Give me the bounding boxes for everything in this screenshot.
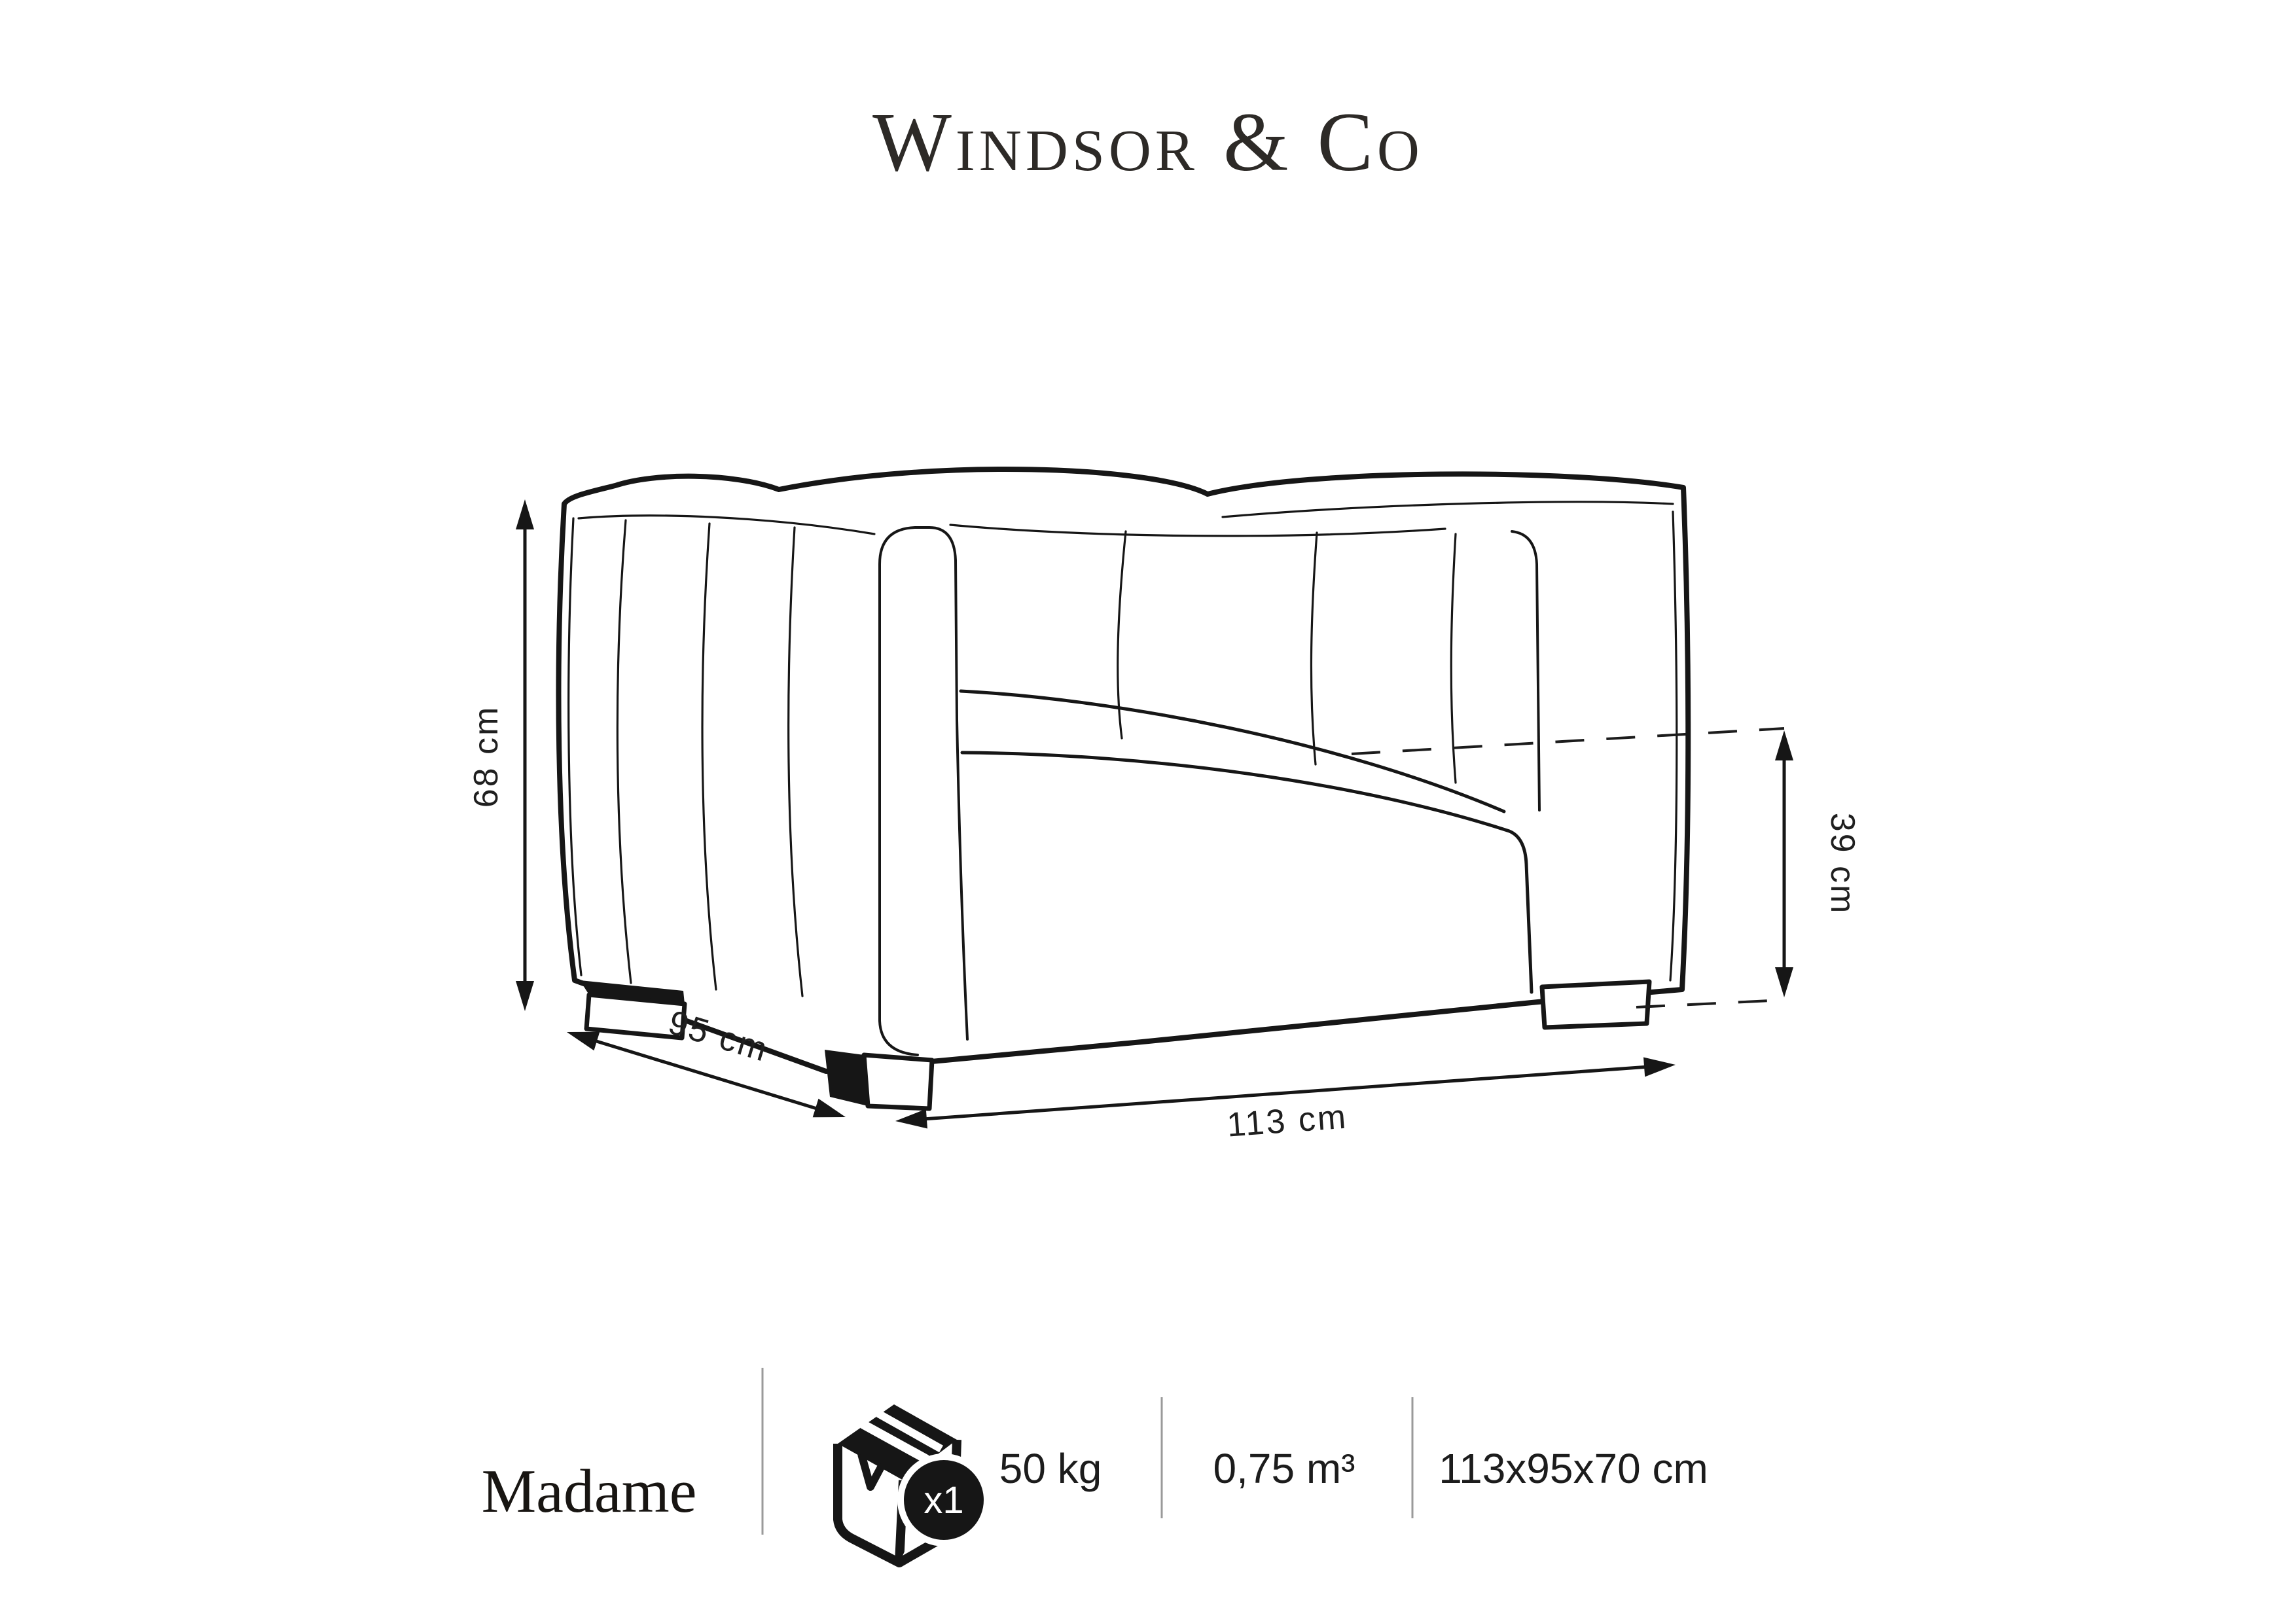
left-edge-inner-line: [569, 518, 581, 975]
front-right-foot: [1542, 982, 1649, 1027]
width-dimension-label: 113 cm: [1226, 1098, 1349, 1145]
back-channel-seam: [1451, 534, 1456, 783]
dimension-annotations: 68 cm 95 cm 113 cm 39 cm: [467, 499, 1861, 1145]
width-dimension: 113 cm: [895, 1058, 1676, 1145]
arrow-down-icon: [516, 981, 534, 1011]
foot-front-face: [1542, 982, 1649, 1027]
count-badge-label: x1: [924, 1479, 963, 1522]
spec-sheet-canvas: Windsor & Co: [0, 0, 2296, 1623]
seat-height-dimension-label: 39 cm: [1823, 813, 1861, 916]
arrow-up-icon: [1775, 730, 1793, 760]
right-arm-inner-seam: [1512, 531, 1539, 810]
side-channel-seam: [617, 520, 631, 983]
side-channel-seam: [789, 527, 802, 996]
brand-logo: Windsor & Co: [872, 96, 1424, 188]
right-top-inner-line: [1223, 502, 1673, 517]
arrow-up-left-icon: [567, 1032, 600, 1051]
armchair-line-drawing: [559, 469, 1689, 1109]
volume-value: 0,75 m³: [1213, 1445, 1355, 1492]
arrow-down-right-icon: [813, 1099, 846, 1118]
weight-value: 50 kg: [999, 1445, 1102, 1492]
box-dimensions-value: 113x95x70 cm: [1439, 1445, 1708, 1492]
arrow-down-icon: [1775, 967, 1793, 997]
left-arm-top-inner-line: [579, 516, 874, 534]
depth-dimension-label: 95 cm: [664, 1003, 774, 1069]
floor-level-dashed-line: [1636, 1000, 1784, 1007]
height-dimension-label: 68 cm: [467, 705, 505, 808]
seat-height-dimension: 39 cm: [1352, 728, 1861, 1007]
front-left-foot: [825, 1050, 932, 1109]
left-arm-front-panel: [880, 527, 967, 1055]
back-channel-seam: [1311, 533, 1317, 764]
arrow-right-icon: [1643, 1058, 1676, 1077]
box-icon: x1: [838, 1404, 987, 1563]
product-spec-sheet: { "brand": { "logo_text": "Windsor & Co"…: [0, 0, 2296, 1623]
right-edge-inner-line: [1670, 512, 1677, 980]
side-channel-seam: [702, 524, 716, 990]
foot-side-wedge: [825, 1050, 868, 1106]
foot-front-face: [864, 1055, 932, 1109]
arrow-left-icon: [895, 1109, 927, 1129]
seat-cushion-top-edge: [961, 691, 1504, 811]
seat-level-dashed-line: [1352, 728, 1784, 754]
arrow-up-icon: [516, 499, 534, 529]
height-dimension: 68 cm: [467, 499, 534, 1011]
product-name: Madame: [482, 1457, 697, 1525]
info-bar: Madame x1 50 kg 0,75 m³ 113x95x70 cm: [482, 1368, 1708, 1563]
back-top-inner-line: [950, 525, 1445, 536]
